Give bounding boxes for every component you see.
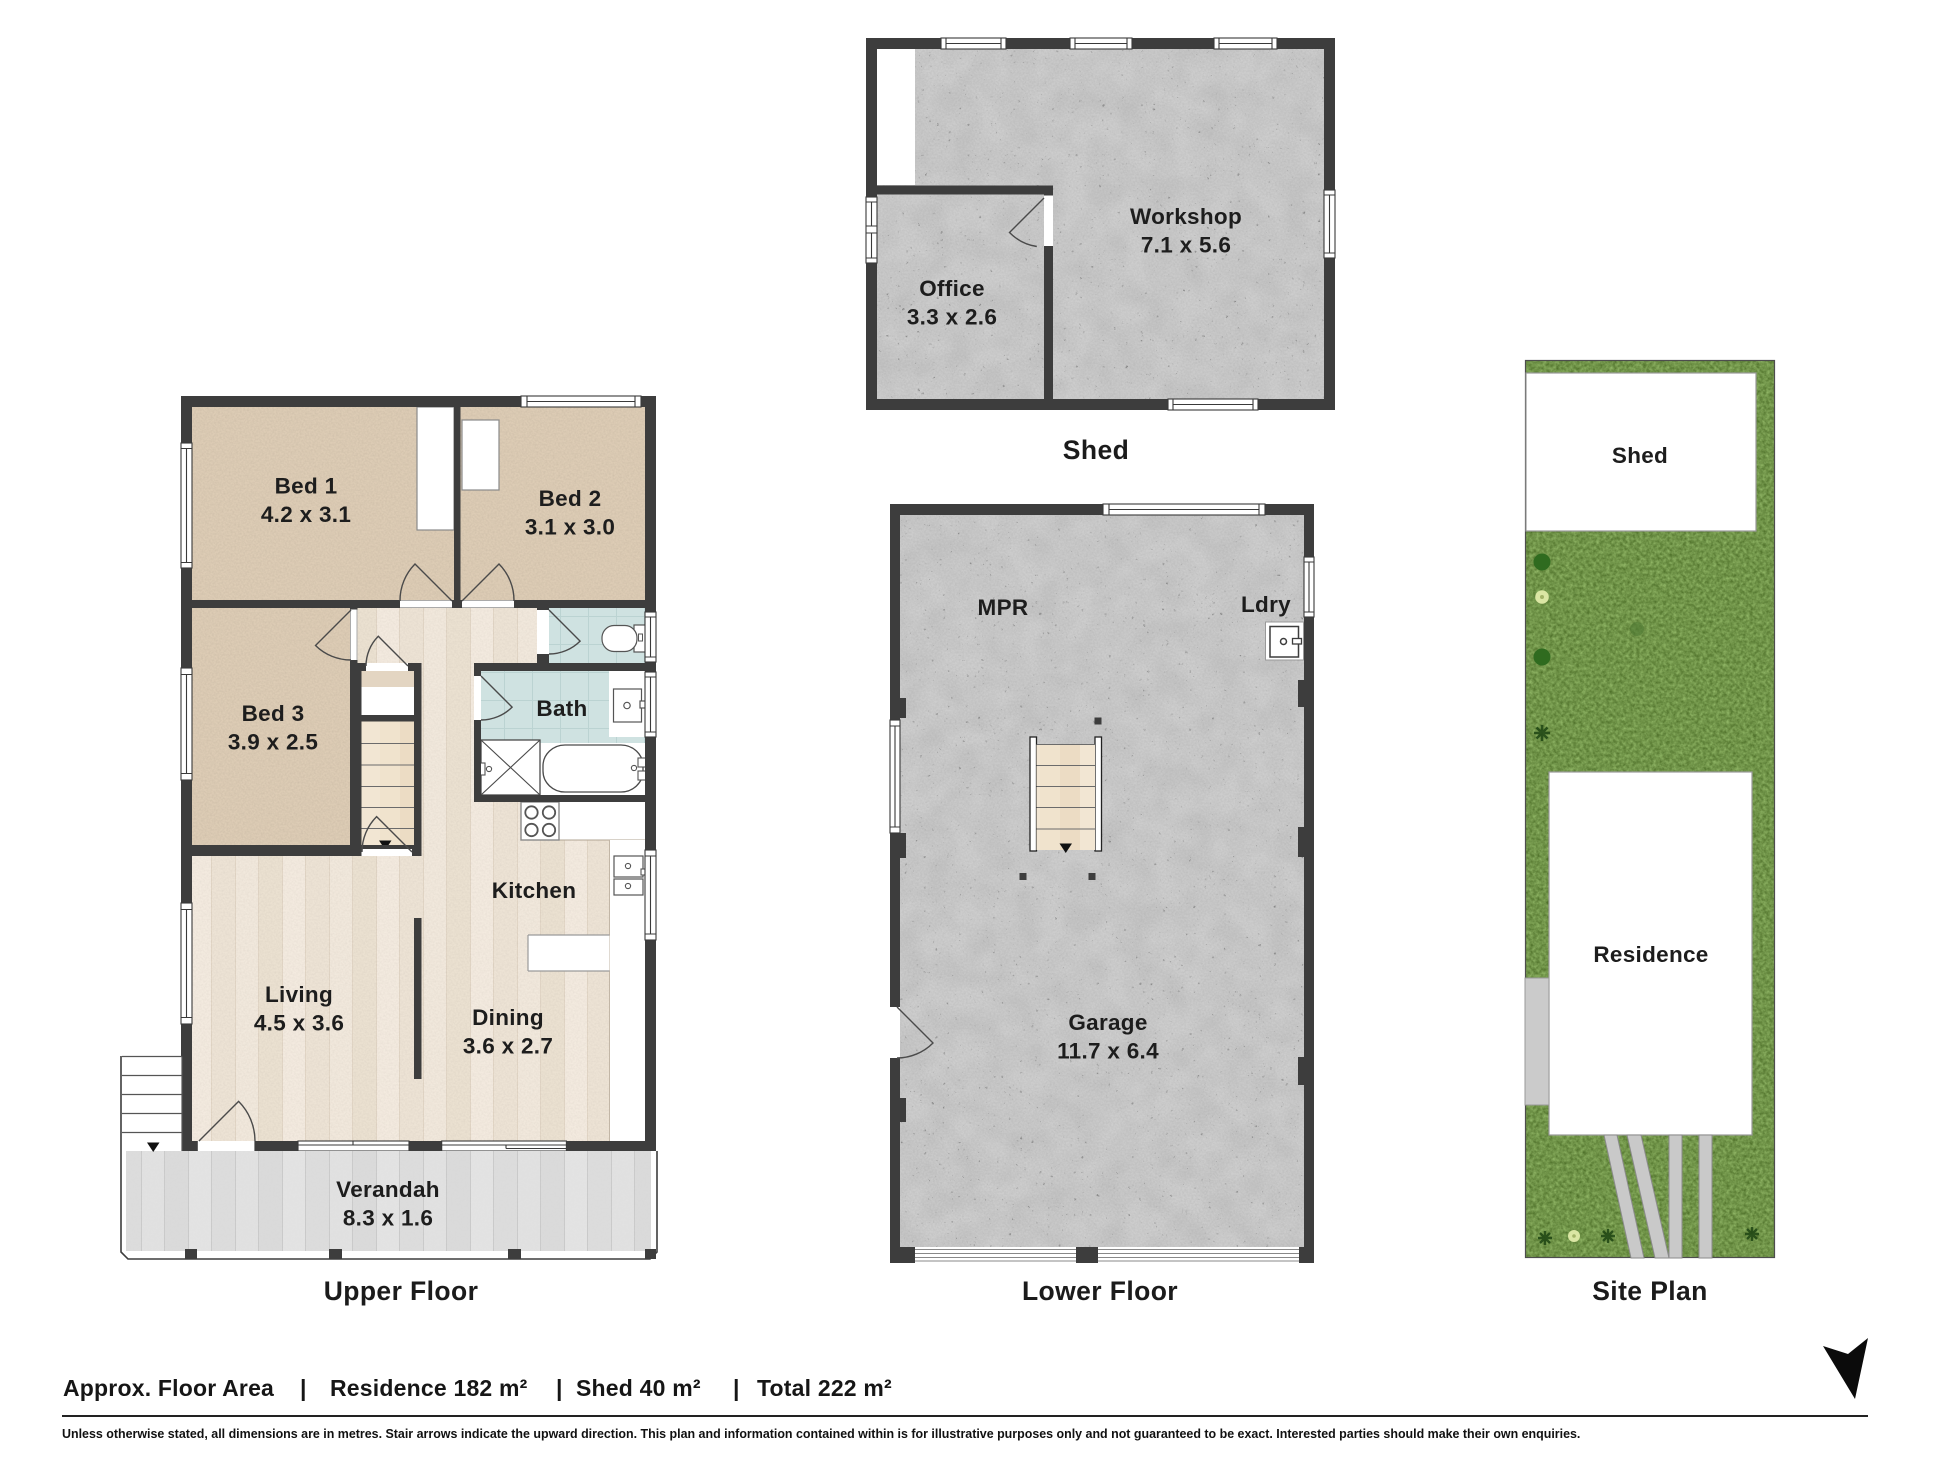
svg-text:8.3 x 1.6: 8.3 x 1.6 xyxy=(343,1206,433,1231)
svg-text:Office: Office xyxy=(919,276,985,301)
svg-text:Lower Floor: Lower Floor xyxy=(1022,1276,1178,1306)
svg-text:|: | xyxy=(556,1375,563,1401)
svg-text:11.7 x 6.4: 11.7 x 6.4 xyxy=(1057,1039,1159,1064)
svg-text:4.2 x 3.1: 4.2 x 3.1 xyxy=(261,502,351,527)
svg-text:Shed 40 m²: Shed 40 m² xyxy=(576,1375,701,1401)
svg-text:Verandah: Verandah xyxy=(336,1177,440,1202)
svg-text:Bed 2: Bed 2 xyxy=(539,486,602,511)
svg-text:Total 222 m²: Total 222 m² xyxy=(757,1375,892,1401)
svg-text:3.6 x 2.7: 3.6 x 2.7 xyxy=(463,1034,553,1059)
svg-text:Approx. Floor Area: Approx. Floor Area xyxy=(63,1375,274,1401)
svg-text:Dining: Dining xyxy=(472,1005,544,1030)
svg-text:3.1 x 3.0: 3.1 x 3.0 xyxy=(525,515,615,540)
svg-text:Upper Floor: Upper Floor xyxy=(324,1276,479,1306)
svg-text:Residence: Residence xyxy=(1593,942,1708,967)
svg-text:Garage: Garage xyxy=(1068,1010,1147,1035)
svg-text:Bed 1: Bed 1 xyxy=(275,474,338,499)
svg-text:Site Plan: Site Plan xyxy=(1592,1276,1708,1306)
svg-text:MPR: MPR xyxy=(978,595,1029,620)
svg-text:Bed 3: Bed 3 xyxy=(242,701,305,726)
svg-text:Workshop: Workshop xyxy=(1130,204,1242,229)
svg-text:7.1 x 5.6: 7.1 x 5.6 xyxy=(1141,233,1231,258)
svg-text:Living: Living xyxy=(265,982,333,1007)
svg-text:3.3 x 2.6: 3.3 x 2.6 xyxy=(907,305,997,330)
svg-text:Ldry: Ldry xyxy=(1241,592,1291,617)
svg-text:3.9 x 2.5: 3.9 x 2.5 xyxy=(228,730,318,755)
svg-text:4.5 x 3.6: 4.5 x 3.6 xyxy=(254,1011,344,1036)
svg-text:Kitchen: Kitchen xyxy=(492,878,577,903)
svg-text:Unless otherwise stated, all d: Unless otherwise stated, all dimensions … xyxy=(62,1427,1580,1441)
svg-text:Shed: Shed xyxy=(1612,443,1668,468)
svg-text:Shed: Shed xyxy=(1063,435,1129,465)
svg-text:Residence 182 m²: Residence 182 m² xyxy=(330,1375,528,1401)
svg-text:|: | xyxy=(300,1375,307,1401)
svg-text:Bath: Bath xyxy=(536,696,587,721)
svg-text:|: | xyxy=(733,1375,740,1401)
